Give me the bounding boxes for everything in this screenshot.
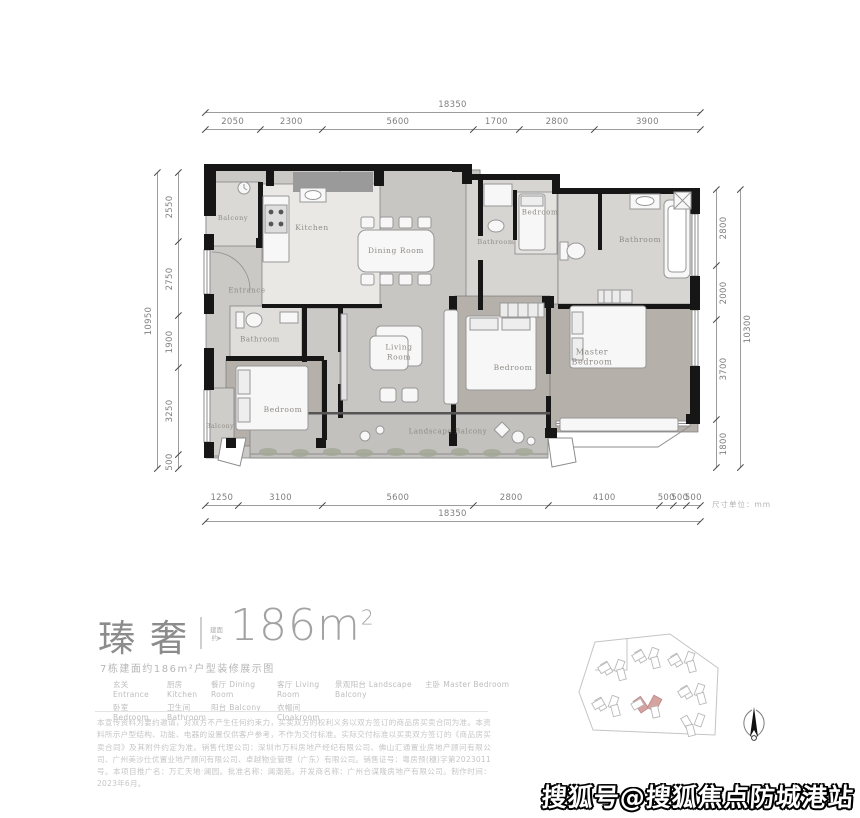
room-label-bath-mid-top: Bathroom [477, 238, 514, 246]
divider-line [95, 711, 488, 712]
dim-label: 2550 [165, 196, 175, 219]
legend-item: 厨房 Kitchen [167, 679, 211, 699]
room-label-master: Master Bedroom [566, 348, 618, 369]
dim-label: 5600 [386, 117, 409, 127]
room-label-dining: Dining Room [368, 246, 424, 256]
room-label-balcony-bottom: Balcony [206, 423, 234, 431]
dim-label: 1900 [165, 330, 175, 353]
dim-label: 500 [165, 453, 175, 470]
dim-line [716, 190, 717, 468]
dim-label: 1700 [485, 117, 508, 127]
room-label-kitchen: Kitchen [295, 223, 329, 233]
dim-label: 2800 [546, 117, 569, 127]
legend-item: 主卧 Master Bedroom [425, 679, 509, 699]
watermark: 搜狐号@搜狐焦点防城港站 [541, 778, 856, 814]
dim-label: 2000 [719, 281, 729, 304]
dim-line [205, 112, 700, 113]
title-divider [200, 617, 202, 649]
area-number: 186m [230, 600, 361, 651]
dim-label: 2300 [280, 117, 303, 127]
dim-label: 2800 [500, 493, 523, 503]
room-label-entrance: Entrance [228, 286, 265, 295]
area-badge: 建面 约▸ [210, 626, 223, 642]
dim-label: 500 [685, 493, 702, 503]
room-label-bedroom-top: Bedroom [522, 208, 558, 217]
dim-line [178, 173, 179, 468]
legend-item: 餐厅 Dining Room [211, 679, 277, 699]
dim-label: 10950 [144, 306, 154, 335]
unit-title: 瑧奢 [98, 608, 202, 662]
room-label-landscape-balcony: Landscape Balcony [409, 427, 488, 436]
dim-line [205, 505, 700, 506]
area-superscript: 2 [361, 605, 375, 629]
disclaimer-text: 本宣传资料为要约邀请，对双方不产生任何约束力，买卖双方的权利义务以双方签订的商品… [97, 717, 491, 791]
dim-label: 3250 [165, 400, 175, 423]
room-label-living: Living Room [381, 342, 417, 362]
room-label-bedroom-mid: Bedroom [494, 363, 533, 373]
dim-line [740, 190, 741, 468]
dim-label: 3900 [636, 117, 659, 127]
dim-label: 2050 [221, 117, 244, 127]
dim-line [157, 173, 158, 468]
dim-label: 3700 [719, 358, 729, 381]
dim-label [736, 464, 743, 471]
plan-subtitle: 7栋建面约186m²户型装修展示图 [100, 660, 275, 675]
room-label-bath-left: Bathroom [240, 335, 280, 344]
dim-label: 5600 [386, 493, 409, 503]
dim-label: 18350 [438, 509, 467, 519]
dim-label: 2750 [165, 267, 175, 290]
area-badge-line1: 建面 [210, 626, 223, 634]
room-label-bath-right: Bathroom [619, 235, 661, 245]
dim-line [205, 129, 700, 130]
dim-line [205, 521, 700, 522]
dim-label: 1250 [210, 493, 233, 503]
dim-label: 10300 [743, 315, 753, 344]
unit-note: 尺寸单位：mm [712, 499, 771, 510]
dim-label: 1800 [719, 432, 729, 455]
legend-item: 客厅 Living Room [277, 679, 335, 699]
area-badge-line2: 约▸ [210, 634, 223, 642]
dim-label: 2800 [719, 216, 729, 239]
dim-label: 18350 [438, 100, 467, 110]
dim-label: 4100 [593, 493, 616, 503]
floorplan-page: 2050230056001700280039001835012503100560… [0, 0, 860, 818]
dim-label: 3100 [269, 493, 292, 503]
legend-item: 景观阳台 Landscape Balcony [335, 679, 425, 699]
room-legend: 玄关 Entrance 厨房 Kitchen 餐厅 Dining Room 客厅… [113, 679, 509, 722]
area-value: 186m2 [230, 600, 375, 651]
room-label-balcony-top: Balcony [218, 214, 248, 222]
room-label-bedroom-left: Bedroom [264, 405, 303, 415]
legend-item: 玄关 Entrance [113, 679, 167, 699]
dim-label [712, 464, 719, 471]
